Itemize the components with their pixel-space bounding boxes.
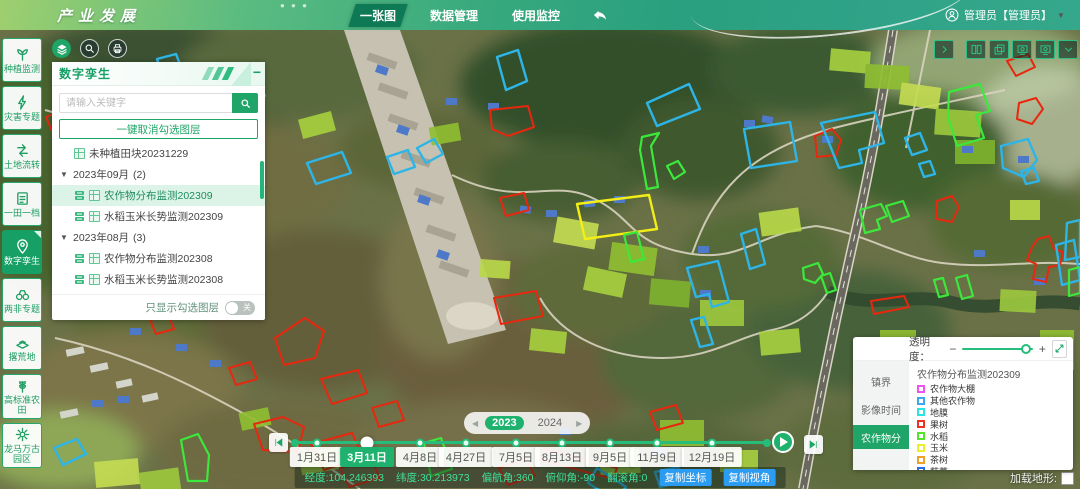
roll-readout: 翻滚角:0: [607, 470, 647, 485]
layers-icon: [56, 43, 68, 55]
search-icon: [84, 43, 95, 54]
scene-view-2-button[interactable]: [1035, 40, 1055, 59]
panel-header: 数字孪生 −: [52, 62, 265, 86]
play-button[interactable]: [772, 431, 794, 453]
legend-item-vegetables: 蔬菜: [917, 466, 1065, 470]
opacity-slider[interactable]: [962, 343, 1032, 355]
show-checked-only-label: 只显示勾选图层: [146, 300, 220, 315]
caret-down-icon: ▼: [60, 233, 69, 242]
search-tool-button[interactable]: [80, 39, 99, 58]
user-dropdown-icon: ▼: [1057, 11, 1066, 20]
wheat-icon: [15, 378, 30, 393]
table-layer-icon: [89, 274, 100, 285]
print-tool-button[interactable]: [108, 39, 127, 58]
disaster-icon: [15, 95, 30, 110]
skip-start-icon: [273, 437, 284, 448]
table-layer-icon: [89, 211, 100, 222]
app-window: 产业发展 ● ● ● 一张图 数据管理 使用监控 管理员【管理员】 ▼ 种植监测…: [0, 0, 1080, 489]
latitude-readout: 纬度:30.213973: [396, 470, 470, 485]
date-dot-0131[interactable]: [313, 438, 322, 447]
terrain-checkbox[interactable]: [1061, 472, 1074, 485]
copy-coordinates-button[interactable]: 复制坐标: [659, 469, 711, 486]
monitor-camera-icon: [1039, 43, 1052, 56]
expand-arrows-icon: [1054, 343, 1065, 354]
tab-crop-distribution[interactable]: 农作物分: [853, 425, 909, 449]
layer-search-row: [59, 93, 258, 113]
panel-corner-decoration: [231, 62, 251, 86]
park-icon: [15, 427, 30, 442]
opacity-label: 透明度：: [909, 334, 943, 364]
copy-layers-icon: [993, 43, 1006, 56]
search-icon: [240, 98, 251, 109]
next-year-arrow[interactable]: ▶: [576, 419, 582, 428]
terrain-toggle-row: 加载地形:: [1010, 470, 1074, 486]
rice-swatch: [917, 432, 925, 440]
pitch-readout: 俯仰角:-90: [546, 470, 596, 485]
sidebar-item-planting-monitor[interactable]: 种植监测: [2, 38, 42, 82]
split-view-button[interactable]: [966, 40, 986, 59]
location-pin-icon: [15, 239, 30, 254]
date-dot-0905[interactable]: [606, 438, 615, 447]
monitor-camera-icon: [1016, 43, 1029, 56]
track-start-dot: [291, 439, 299, 447]
year-selector: ◀ 2023 2024 ▶: [464, 412, 590, 434]
legend-expand-button[interactable]: [1052, 340, 1067, 358]
layer-row-crop-202308[interactable]: 农作物分布监测202308: [52, 248, 265, 269]
panel-title: 数字孪生: [59, 65, 111, 82]
dataset-icon: [74, 253, 85, 264]
date-chip-1219[interactable]: 12月19日: [682, 447, 742, 467]
app-logo: 产业发展: [57, 5, 141, 26]
legend-body: 镇界 影像时间 农作物分 农作物分布监测202309 农作物大棚 其他农作物 地…: [853, 361, 1073, 470]
date-dot-1219[interactable]: [708, 438, 717, 447]
nav-tab-one-map[interactable]: 一张图: [348, 4, 407, 27]
sidebar-item-land-transfer[interactable]: 土地流转: [2, 134, 42, 178]
corn-swatch: [917, 444, 925, 452]
fruit-trees-swatch: [917, 420, 925, 428]
main-nav: 一张图 数据管理 使用监控: [352, 0, 607, 30]
collapse-panel-button[interactable]: [934, 40, 954, 59]
date-chip-0905[interactable]: 9月5日: [586, 447, 634, 467]
map-controls: [934, 40, 1078, 59]
layer-tree: 未种植田块20231229 ▼ 2023年09月 (2) 农作物分布监测2023…: [52, 143, 265, 290]
date-chip-0705[interactable]: 7月5日: [492, 447, 540, 467]
panel-minimize-button[interactable]: −: [253, 64, 261, 80]
back-arrow-icon[interactable]: [592, 8, 607, 23]
date-chip-0311[interactable]: 3月11日: [340, 447, 394, 467]
sidebar-item-fallow-land[interactable]: 撂荒地: [2, 326, 42, 370]
legend-item-fruit-trees: 果树: [917, 418, 1065, 430]
date-dot-0408[interactable]: [416, 438, 425, 447]
fallow-land-icon: [15, 335, 30, 350]
date-chip-0427[interactable]: 4月27日: [439, 447, 493, 467]
toggle-state-text: 关: [243, 302, 251, 314]
table-layer-icon: [89, 253, 100, 264]
skip-to-start-button[interactable]: [269, 433, 288, 452]
greenhouse-swatch: [917, 385, 925, 393]
layer-search-input[interactable]: [59, 93, 232, 113]
date-chip-1109[interactable]: 11月9日: [630, 447, 684, 467]
digital-twin-panel: 数字孪生 − 一键取消勾选图层 未种植田块20231229 ▼ 2023年09月…: [52, 62, 265, 320]
controls-separator: [957, 40, 963, 59]
legend-item-mulch-film: 地膜: [917, 407, 1065, 419]
land-transfer-icon: [15, 143, 30, 158]
layer-row-rice-corn-202309[interactable]: 水稻玉米长势监测202309: [52, 206, 265, 227]
legend-layer-title: 农作物分布监测202309: [917, 366, 1065, 381]
copy-view-button[interactable]: 复制视角: [723, 469, 775, 486]
legend-item-tea-trees: 茶树: [917, 454, 1065, 466]
coordinate-status-bar: 经度:104.246393 纬度:30.213973 偏航角:360 俯仰角:-…: [295, 467, 786, 488]
track-end-dot: [763, 439, 771, 447]
table-layer-icon: [74, 148, 85, 159]
vegetables-swatch: [917, 467, 925, 470]
dataset-icon: [74, 211, 85, 222]
left-sidebar: 种植监测 灾害专题 土地流转 一田一档 数字孪生 两非专题 撂荒地 高标准农田: [2, 38, 44, 468]
app-header: 产业发展 ● ● ● 一张图 数据管理 使用监控 管理员【管理员】 ▼: [0, 0, 1080, 30]
field-archive-icon: [15, 191, 30, 206]
legend-content: 农作物分布监测202309 农作物大棚 其他农作物 地膜 果树 水稻 玉米 茶树…: [909, 361, 1073, 470]
date-chip-0408[interactable]: 4月8日: [396, 447, 444, 467]
map-toolbar: [52, 39, 127, 58]
uncheck-all-layers-button[interactable]: 一键取消勾选图层: [59, 119, 258, 139]
toggle-knob: [226, 302, 238, 314]
other-crops-swatch: [917, 397, 925, 405]
layers-tool-button[interactable]: [52, 39, 71, 58]
skip-end-icon: [808, 439, 819, 450]
skip-to-end-button[interactable]: [804, 435, 823, 454]
tab-image-time[interactable]: 影像时间: [853, 397, 909, 421]
layer-row-rice-corn-202308[interactable]: 水稻玉米长势监测202308: [52, 269, 265, 290]
sidebar-item-two-non-topic[interactable]: 两非专题: [2, 278, 42, 322]
year-2023[interactable]: 2023: [485, 416, 523, 430]
terrain-label: 加载地形:: [1010, 470, 1057, 486]
nav-tab-usage-monitor[interactable]: 使用监控: [504, 4, 568, 27]
dataset-icon: [74, 274, 85, 285]
tab-town-boundary[interactable]: 镇界: [853, 369, 909, 393]
date-chip-0131[interactable]: 1月31日: [290, 447, 344, 467]
date-dot-0813[interactable]: [558, 438, 567, 447]
date-chip-0813[interactable]: 8月13日: [535, 447, 589, 467]
layer-copy-button[interactable]: [989, 40, 1009, 59]
tea-trees-swatch: [917, 456, 925, 464]
user-menu[interactable]: 管理员【管理员】 ▼: [945, 0, 1066, 30]
sidebar-item-digital-twin[interactable]: 数字孪生: [2, 230, 42, 274]
avatar-icon: [945, 8, 959, 22]
print-icon: [112, 43, 123, 54]
play-icon: [780, 437, 788, 447]
dataset-icon: [74, 190, 85, 201]
prev-year-arrow[interactable]: ◀: [472, 419, 478, 428]
slider-handle[interactable]: [1021, 344, 1031, 354]
controls-expand-button[interactable]: [1058, 40, 1078, 59]
heading-readout: 偏航角:360: [482, 470, 534, 485]
opacity-row: 透明度： − +: [853, 337, 1073, 361]
chevron-down-icon: [1062, 43, 1075, 56]
legend-item-rice: 水稻: [917, 430, 1065, 442]
user-name: 管理员【管理员】: [964, 7, 1052, 23]
legend-panel: 透明度： − + 镇界 影像时间 农作物分 农作物分布监测202309 农作物大…: [853, 337, 1073, 470]
layer-search-button[interactable]: [232, 93, 258, 113]
opacity-plus-button[interactable]: +: [1039, 342, 1046, 356]
panel-scrollbar[interactable]: [260, 161, 264, 199]
sidebar-item-longma-wangu-park[interactable]: 龙马万古园区: [2, 423, 42, 468]
show-checked-only-row: 只显示勾选图层 关: [52, 294, 265, 320]
layer-group-2023-08[interactable]: ▼ 2023年08月 (3): [52, 227, 265, 248]
binoculars-icon: [15, 287, 30, 302]
date-dot-0427[interactable]: [462, 438, 471, 447]
timeline-track[interactable]: [295, 441, 767, 444]
date-dot-0705[interactable]: [512, 438, 521, 447]
date-dot-1109[interactable]: [653, 438, 662, 447]
sidebar-item-high-standard-farmland[interactable]: 高标准农田: [2, 374, 42, 419]
legend-tabs: 镇界 影像时间 农作物分: [853, 361, 909, 470]
legend-item-greenhouse: 农作物大棚: [917, 383, 1065, 395]
layer-row-crop-202309[interactable]: 农作物分布监测202309: [52, 185, 265, 206]
legend-item-corn: 玉米: [917, 442, 1065, 454]
sidebar-item-field-archive[interactable]: 一田一档: [2, 182, 42, 226]
show-checked-only-toggle[interactable]: 关: [225, 301, 255, 315]
year-2024[interactable]: 2024: [531, 416, 569, 430]
panel-slashes-decoration: [205, 67, 231, 80]
scene-view-button[interactable]: [1012, 40, 1032, 59]
legend-item-other-crops: 其他农作物: [917, 395, 1065, 407]
mulch-film-swatch: [917, 408, 925, 416]
caret-down-icon: ▼: [60, 170, 69, 179]
sprout-icon: [15, 47, 30, 62]
layer-row-unplanted[interactable]: 未种植田块20231229: [52, 143, 265, 164]
header-dots-decoration: ● ● ●: [280, 1, 309, 10]
sidebar-item-disaster[interactable]: 灾害专题: [2, 86, 42, 130]
layer-group-2023-09[interactable]: ▼ 2023年09月 (2): [52, 164, 265, 185]
chevron-right-icon: [938, 43, 951, 56]
split-columns-icon: [970, 43, 983, 56]
table-layer-icon: [89, 190, 100, 201]
nav-tab-data-management[interactable]: 数据管理: [422, 4, 486, 27]
opacity-minus-button[interactable]: −: [949, 342, 956, 356]
longitude-readout: 经度:104.246393: [305, 470, 384, 485]
